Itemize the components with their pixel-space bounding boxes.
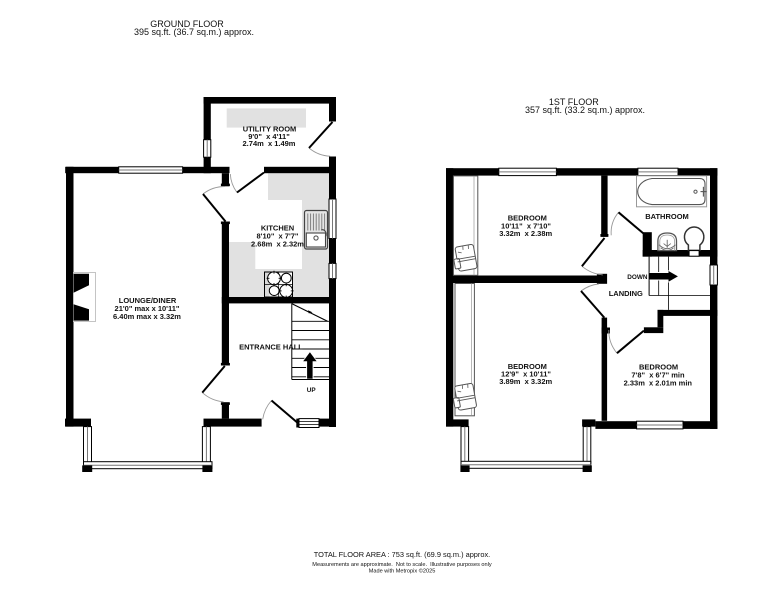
svg-text:UP: UP [307, 387, 317, 394]
svg-text:Measurements are approximate.: Measurements are approximate. Not to sca… [312, 562, 492, 568]
svg-text:ENTRANCE HALL: ENTRANCE HALL [239, 343, 303, 352]
svg-text:2.33m x 2.01m min: 2.33m x 2.01m min [624, 378, 693, 387]
svg-text:Made with Metropix ©2025: Made with Metropix ©2025 [369, 567, 436, 574]
svg-text:395 sq.ft. (36.7 sq.m.) approx: 395 sq.ft. (36.7 sq.m.) approx. [134, 27, 254, 37]
svg-text:LANDING: LANDING [609, 289, 643, 298]
svg-text:3.89m x 3.32m: 3.89m x 3.32m [499, 377, 552, 386]
svg-text:3.32m x 2.38m: 3.32m x 2.38m [499, 229, 552, 238]
svg-text:2.68m x 2.32m: 2.68m x 2.32m [251, 240, 304, 249]
svg-text:DOWN: DOWN [627, 274, 648, 281]
svg-text:BATHROOM: BATHROOM [645, 212, 689, 221]
svg-text:TOTAL FLOOR AREA : 753 sq.ft.: TOTAL FLOOR AREA : 753 sq.ft. (69.9 sq.m… [314, 550, 491, 559]
svg-text:357 sq.ft. (33.2 sq.m.) approx: 357 sq.ft. (33.2 sq.m.) approx. [525, 105, 645, 115]
svg-text:6.40m max x 3.32m: 6.40m max x 3.32m [113, 312, 181, 321]
svg-text:2.74m x 1.49m: 2.74m x 1.49m [243, 139, 296, 148]
